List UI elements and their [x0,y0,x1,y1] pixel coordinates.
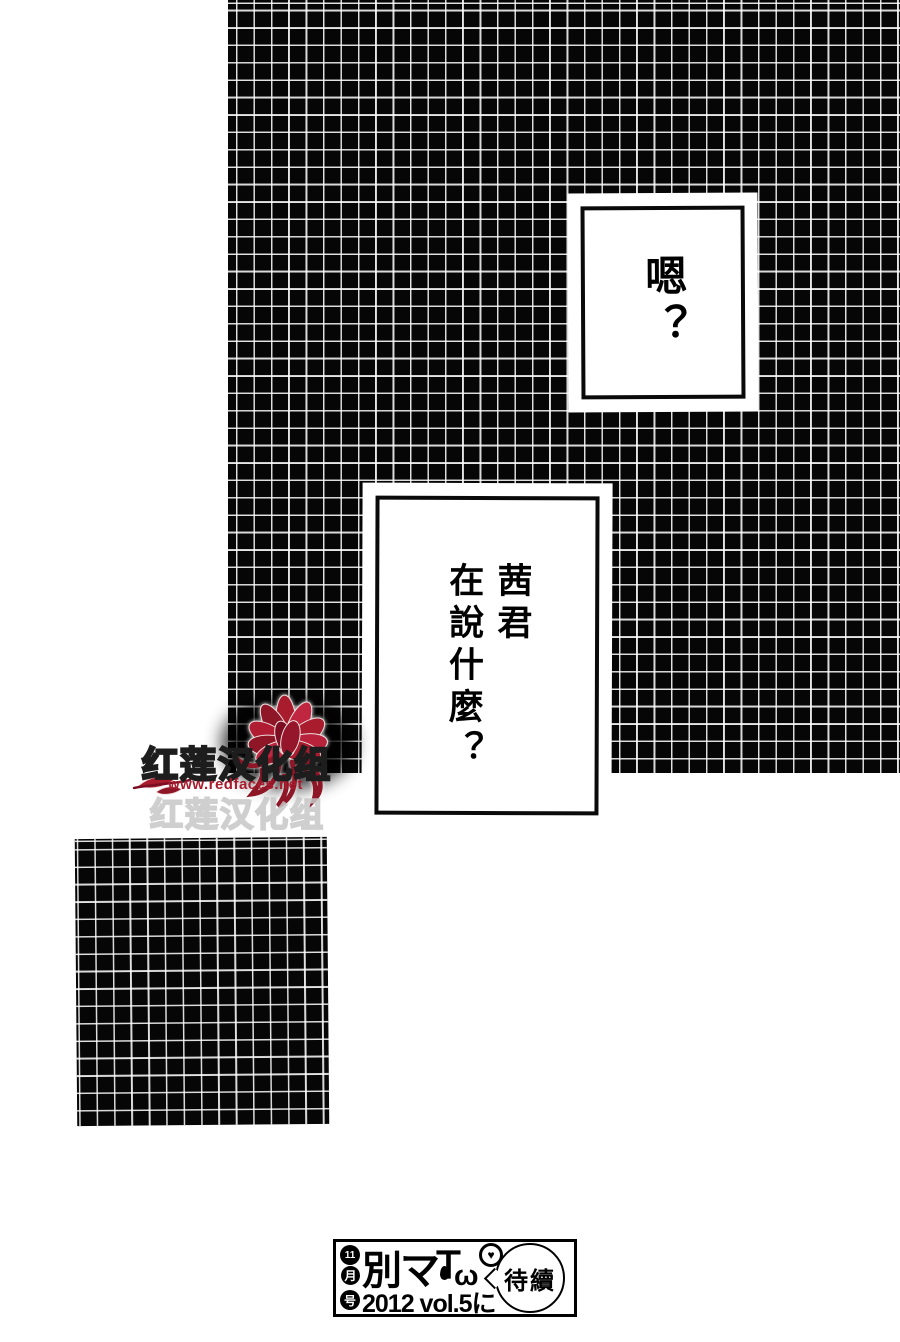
speech-bubble-1-text: 嗯？ [634,253,692,351]
speech-bubble-2: 茜君 在說什麼？ [361,483,612,829]
issue-info: 2012 vol.5に [362,1284,496,1320]
speech-bubble-2-text: 茜君 在說什麼？ [438,561,535,771]
watermark-url: www.redfaces.net [168,776,303,793]
speech-bubble-2-frame: 茜君 在說什麼？ [374,496,599,816]
teardrop-icon [440,1266,449,1280]
issue-circle-month-kanji: 月 [341,1266,360,1285]
manga-page: 嗯？ 茜君 在說什麼？ [0,0,900,1342]
heart-glyph: ♥ [487,1248,494,1262]
speech-bubble-1-frame: 嗯？ [580,206,745,400]
to-be-continued-text: 待續 [504,1261,556,1296]
issue-circle-go-kanji: 号 [340,1290,360,1310]
footer-info-box: 11 月 号 別マ Ｔ ω ♥ 2012 vol.5に 待續 [333,1239,577,1317]
watermark-ghost-text: 红莲汉化组 [150,788,325,836]
small-grid-panel [75,837,329,1126]
issue-circle-month-number: 11 [340,1245,360,1265]
speech-bubble-2-column1: 茜君 [487,562,536,772]
speech-bubble-1: 嗯？ [567,193,758,413]
speech-bubble-2-column2: 在說什麼？ [438,561,487,771]
